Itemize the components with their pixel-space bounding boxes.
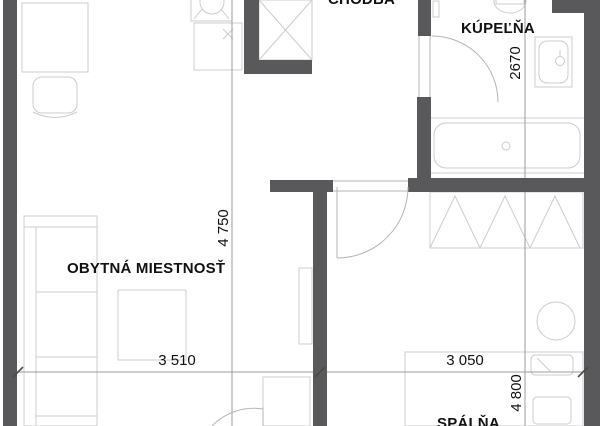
room-label-obytna-miestnost: OBYTNÁ MIESTNOSŤ	[67, 260, 225, 277]
room-label-chodba: CHODBA	[328, 0, 395, 8]
dimension-label-4800: 4 800	[509, 374, 525, 412]
radiator	[433, 1, 439, 17]
dimension-label-3510: 3 510	[158, 353, 196, 369]
bathtub-inner	[434, 123, 580, 168]
wall-living-bedroom	[313, 192, 327, 426]
wall-right-exterior	[584, 0, 600, 426]
bathtub	[428, 118, 585, 173]
toilet-tank	[496, 0, 524, 4]
dining-table	[22, 3, 88, 72]
room-label-kupelna: KÚPEĽŇA	[461, 20, 535, 37]
bathtub-drain	[502, 142, 510, 150]
wall-bathroom-left-upper	[418, 0, 431, 36]
dimension-label-4750: 4 750	[216, 209, 232, 247]
toilet-bowl	[494, 0, 526, 13]
wall-bathroom-left-lower	[417, 97, 431, 192]
sofa	[24, 216, 97, 426]
sink-corner-line	[194, 9, 202, 19]
kitchen-sink-unit	[191, 0, 232, 21]
coffee-table	[118, 290, 186, 360]
floor-plan: CHODBA KÚPEĽŇA OBYTNÁ MIESTNOSŤ SPÁLŇA 2…	[0, 0, 600, 426]
bathroom-door-swing	[432, 36, 498, 102]
round-side-table	[537, 302, 575, 340]
wall-kitchen-closet-horizontal	[244, 60, 312, 74]
washbasin-inner	[539, 41, 568, 83]
bottom-door-swing	[212, 408, 263, 426]
dimension-label-3050: 3 050	[446, 353, 484, 369]
kitchen-counter	[194, 23, 242, 70]
dimension-label-2670: 2670	[508, 46, 524, 79]
room-label-spalna: SPÁLŇA	[437, 415, 500, 426]
washbasin-faucet	[556, 57, 565, 66]
kitchen-sink-bowl	[200, 0, 224, 14]
bed-pillow	[533, 397, 571, 424]
wall-bathroom-bedroom	[408, 178, 600, 192]
wardrobe-hanging-symbol	[430, 196, 580, 248]
dining-chair	[33, 77, 77, 113]
bedroom-furniture	[405, 192, 583, 426]
tv-shelf	[299, 268, 312, 344]
pillow-fold-line	[537, 358, 550, 371]
tv-cabinet	[263, 377, 310, 426]
wall-left-exterior	[3, 0, 17, 426]
wall-top-right-corner	[552, 0, 600, 13]
wall-hallway-bedroom	[270, 180, 333, 192]
sink-corner-line	[221, 9, 229, 19]
bedroom-door-swing	[337, 187, 408, 258]
